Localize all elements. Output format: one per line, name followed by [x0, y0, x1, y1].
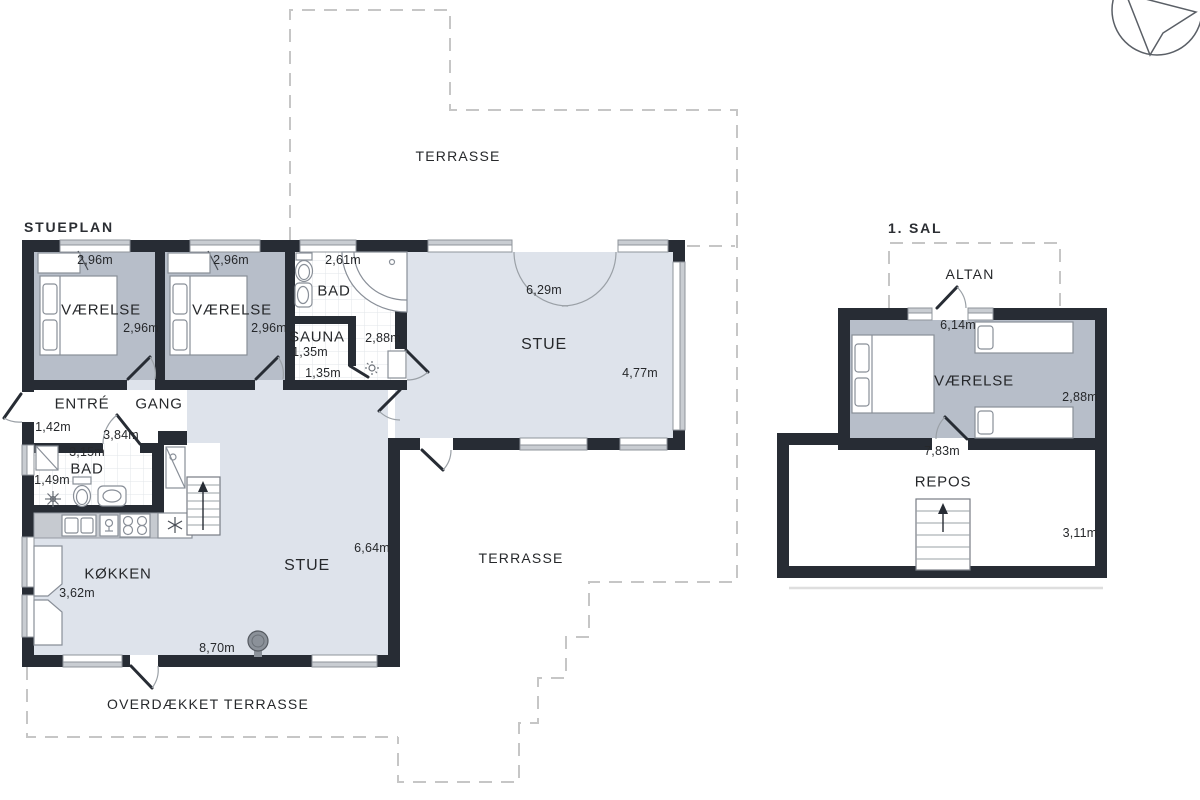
floorplan-drawing	[0, 0, 1200, 800]
first-floor-plan	[777, 243, 1107, 588]
floorplan-page: STUEPLAN TERRASSE VÆRELSE 2,96m 2,96m VÆ…	[0, 0, 1200, 800]
toilet-icon	[296, 253, 313, 282]
balcony-outline	[889, 243, 1060, 308]
bench-icon	[388, 351, 406, 378]
wardrobe-icon	[38, 253, 80, 273]
kitchen-sink-icon	[62, 515, 96, 536]
kitchen-counter	[34, 513, 192, 538]
double-bed-icon	[852, 335, 934, 413]
north-arrow-icon	[1112, 0, 1200, 55]
double-bed-icon	[40, 276, 117, 355]
floors	[34, 252, 673, 655]
single-bed-icon	[975, 407, 1073, 438]
cabinet-icon	[36, 446, 58, 470]
double-bed-icon	[170, 276, 247, 355]
dishwasher-icon	[100, 515, 118, 536]
stairs-icon	[187, 477, 220, 535]
shower-cabin-icon	[166, 447, 185, 488]
sink-icon	[295, 283, 312, 307]
wardrobe-icon	[168, 253, 210, 273]
sink-icon	[98, 486, 126, 506]
ground-floor-plan	[4, 10, 737, 782]
stairs-icon	[916, 499, 970, 570]
toilet-icon	[73, 477, 91, 507]
stove-icon	[120, 514, 150, 537]
single-bed-icon	[975, 322, 1073, 353]
